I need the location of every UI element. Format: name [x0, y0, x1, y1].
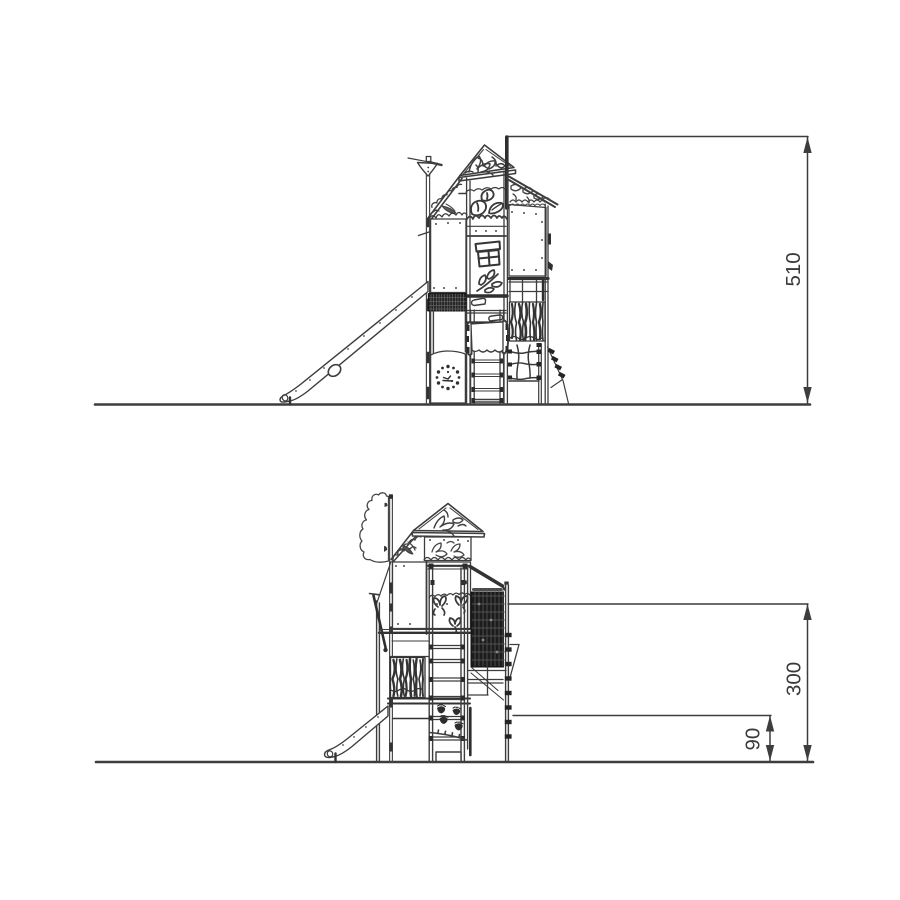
svg-text:90: 90: [742, 728, 765, 751]
svg-text:510: 510: [782, 252, 805, 286]
svg-text:300: 300: [783, 662, 806, 696]
